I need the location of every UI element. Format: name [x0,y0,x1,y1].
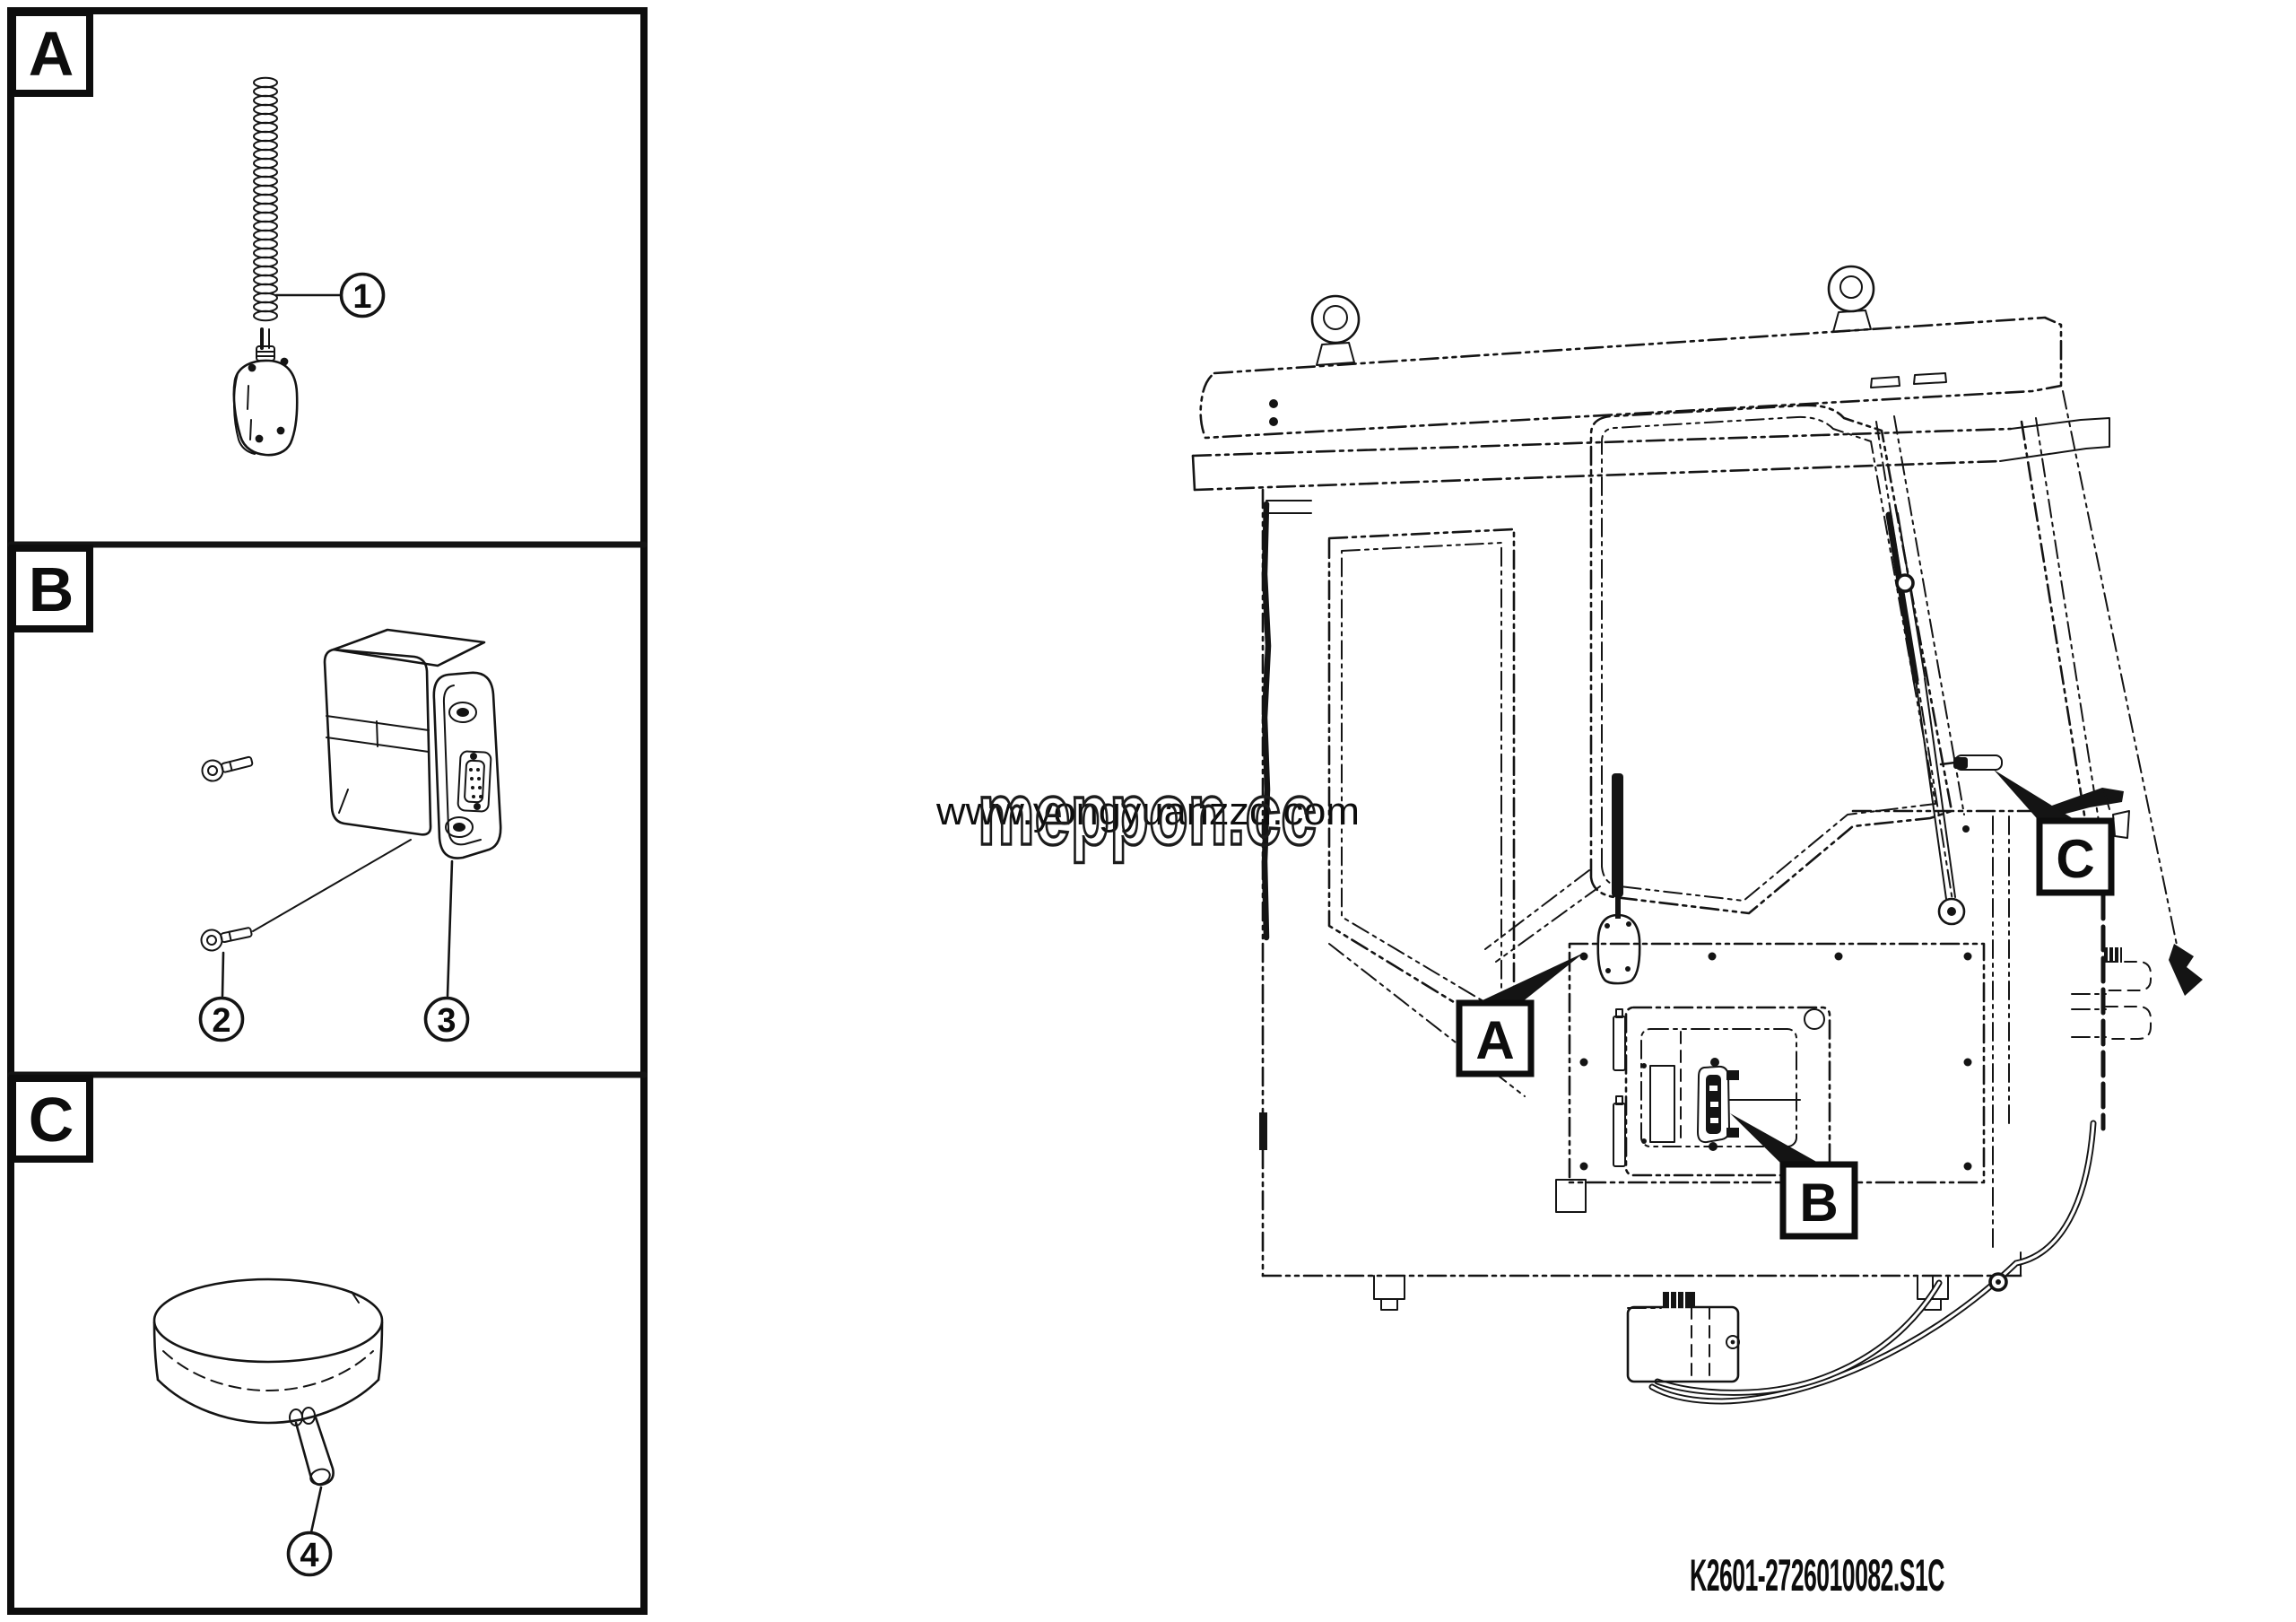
base-screw-hole [256,435,264,443]
disc-skirt [158,1380,378,1423]
callout-3: 3 [426,861,468,1041]
watermarks: www.yongyuanzzd.com meppon.cc [935,764,1360,863]
antenna-mast [1612,773,1623,897]
antenna-base-on-panel [1598,915,1639,983]
wiper-arm [1916,680,1946,899]
right-connector-bracket [2072,947,2151,1039]
cables [1652,1123,2093,1401]
panel-fastener [1580,1059,1588,1067]
callout-2-leader [222,953,223,996]
callout-1: 1 [276,275,384,317]
cab-antenna-mast [1598,773,1639,983]
bottom-bracket [1628,1292,1739,1382]
section-b-label: B [29,554,74,624]
module-top-face [334,630,484,666]
screw-position-leader [253,840,411,931]
antenna-mount-cylinder [1941,755,2002,770]
panel-dsub-connector [1698,1058,1800,1151]
side-connector [1613,1016,1625,1070]
harness-bundle [2169,944,2203,996]
detail-panel-border [11,11,644,1611]
antenna-base-pad [234,361,297,455]
connector-outline [2106,1007,2151,1039]
antenna-coil [254,78,277,320]
diagram-canvas: A [0,0,2296,1622]
base-screw-hole [281,358,289,366]
watermark-brand: meppon.cc [978,764,1317,863]
screw-icon [199,921,253,952]
label-b-text: B [1799,1173,1838,1233]
label-c-pointer [1994,770,2083,824]
callout-3-leader [448,861,452,996]
cab-bottom [1263,1252,2021,1310]
cab-label-a: A [1459,953,1584,1074]
callout-1-number: 1 [352,278,371,316]
label-a-text: A [1475,1010,1514,1070]
section-b: B [13,548,500,1041]
callout-2: 2 [201,953,243,1041]
detail-panel: A [11,11,644,1611]
parts-diagram-page: A [0,0,2296,1622]
section-c: C 4 [13,1078,382,1575]
disc-seam [163,1351,373,1391]
panel-fastener [1964,1059,1972,1067]
section-a: A [13,13,384,455]
base-screw-hole [277,427,285,435]
callout-4: 4 [289,1487,331,1575]
panel-fastener [1580,1163,1588,1171]
callout-3-number: 3 [437,1002,456,1040]
drawing-number: K2601-2726010082.S1C [1690,1550,1944,1600]
section-a-label: A [29,19,74,89]
screw-icon [200,751,254,783]
section-c-label: C [29,1085,74,1155]
antenna-collar [257,346,274,361]
panel-fastener [1964,953,1972,961]
lifting-eye-icon [1312,296,1359,365]
cab-illustration: A B C [1193,266,2203,1401]
side-connector [1613,1103,1625,1166]
label-c-text: C [2056,829,2094,889]
right-pillars [1853,391,2203,1249]
label-a-pointer [1471,953,1584,1006]
door-hinge-strip [1265,504,1268,937]
control-box [1613,1007,1830,1175]
bracket-outline [1628,1307,1738,1382]
disc-antenna-illustration [154,1279,382,1487]
mount-foot [1374,1276,1405,1310]
callout-4-number: 4 [300,1537,318,1574]
connector-outline [2106,962,2151,990]
panel-fastener [1964,1163,1972,1171]
callout-4-leader [311,1487,321,1532]
callout-2-number: 2 [212,1002,230,1040]
panel-fastener [1835,953,1843,961]
panel-fastener [1580,953,1588,961]
label-b-pointer [1730,1113,1828,1168]
disc-top [154,1279,382,1362]
base-screw-hole [248,364,257,372]
coil-antenna-illustration [234,78,297,455]
panel-fastener [1709,953,1717,961]
disc-stem [296,1417,334,1485]
control-module-illustration [325,630,500,859]
ribbed-connector [1663,1292,1695,1308]
control-box-hole [1805,1009,1824,1029]
dsub-connector [457,751,491,812]
lifting-eye-icon [1829,266,1874,332]
step-cutout [1556,1180,1586,1212]
cab-roof [1193,266,2109,490]
